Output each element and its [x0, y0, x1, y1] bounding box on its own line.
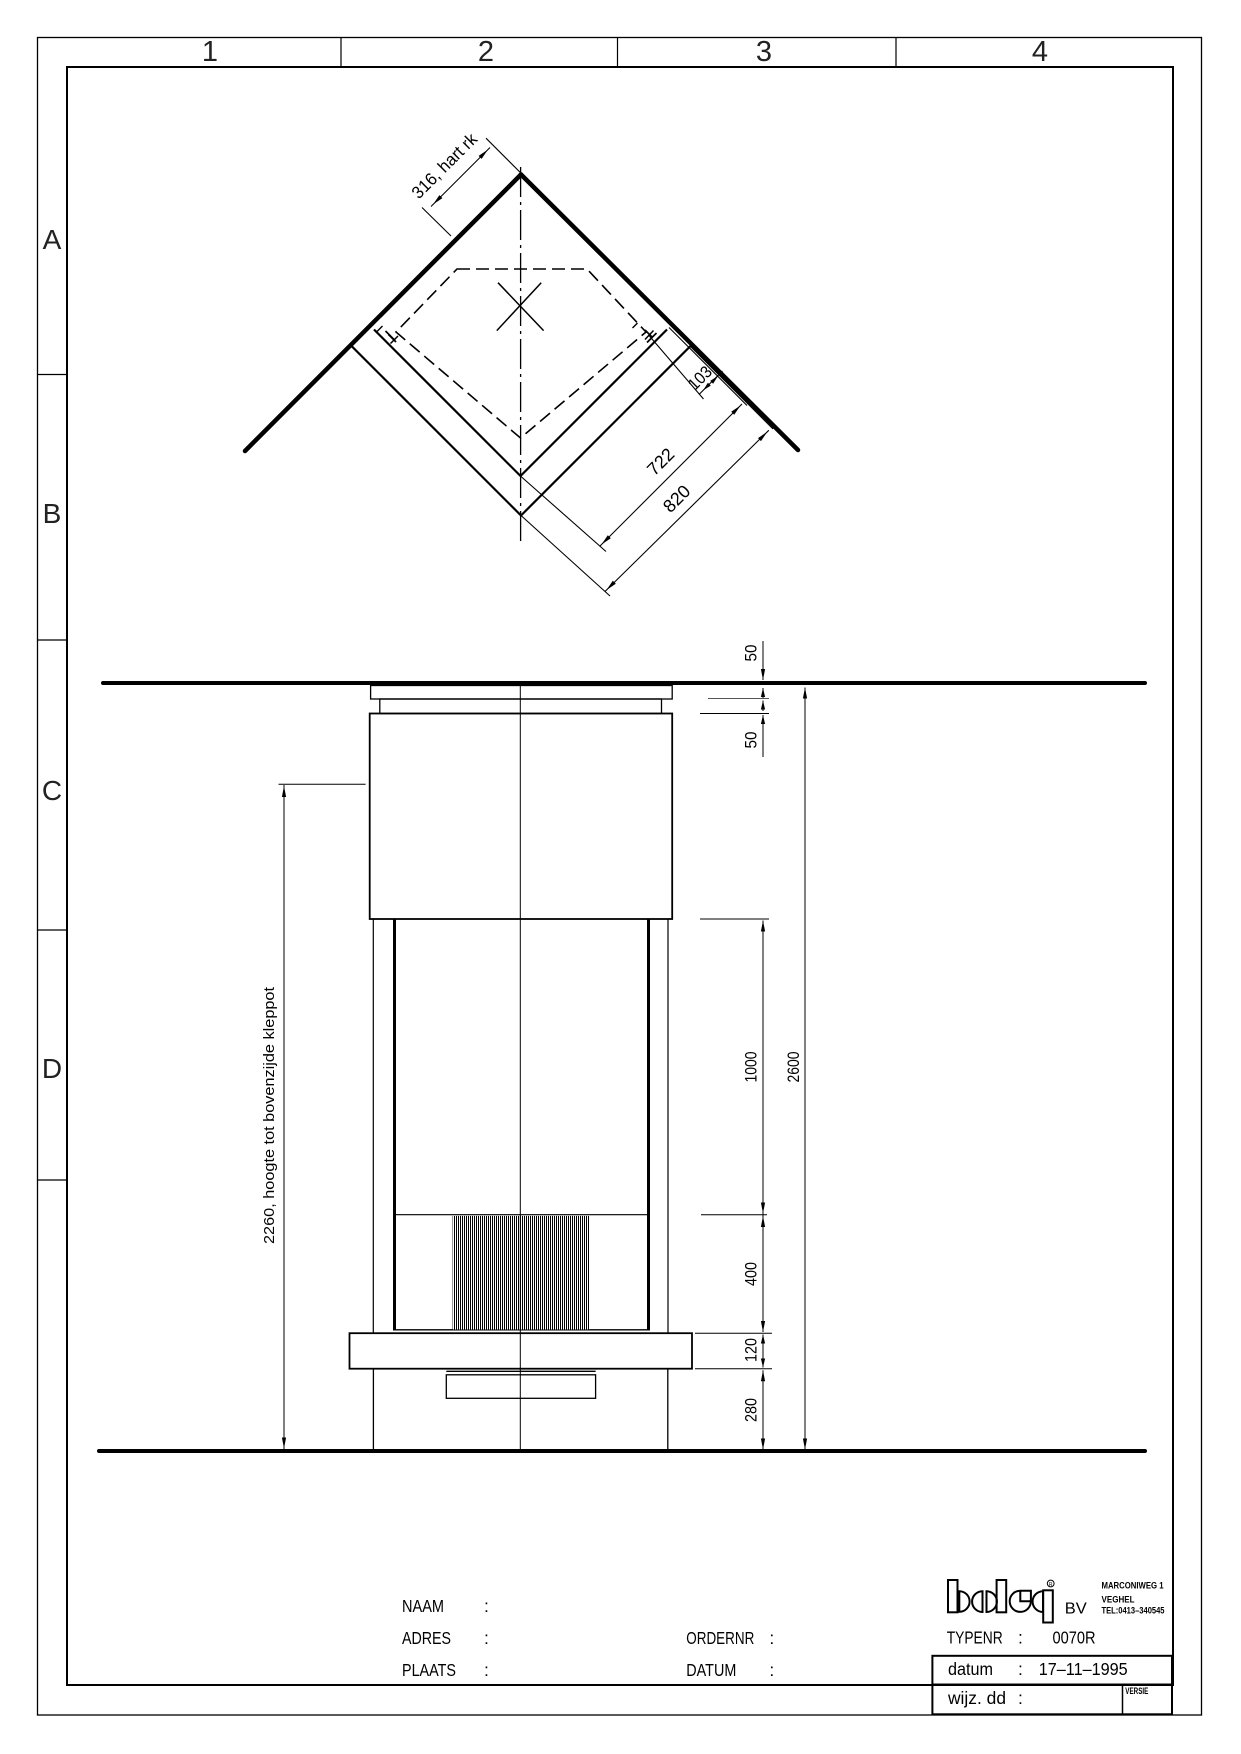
svg-text::: :	[1018, 1627, 1023, 1647]
svg-text:datum: datum	[948, 1659, 993, 1679]
svg-text:2: 2	[478, 36, 494, 68]
svg-text:VEGHEL: VEGHEL	[1102, 1594, 1135, 1604]
svg-text:PLAATS: PLAATS	[402, 1660, 456, 1680]
svg-text:400: 400	[742, 1262, 761, 1286]
svg-text:50: 50	[742, 645, 761, 662]
svg-text:MARCONIWEG 1: MARCONIWEG 1	[1102, 1581, 1164, 1591]
svg-text:NAAM: NAAM	[402, 1596, 444, 1616]
svg-text:4: 4	[1032, 36, 1048, 68]
svg-text:1000: 1000	[742, 1052, 761, 1083]
svg-text:BV: BV	[1065, 1601, 1088, 1618]
svg-text:1: 1	[202, 36, 218, 68]
svg-text:TYPENR: TYPENR	[947, 1627, 1003, 1647]
svg-text:280: 280	[742, 1398, 761, 1422]
svg-text:VERSIE: VERSIE	[1125, 1686, 1148, 1696]
svg-text:D: D	[42, 1053, 62, 1084]
svg-text:3: 3	[756, 36, 772, 68]
svg-text:50: 50	[742, 732, 761, 749]
svg-text::: :	[769, 1660, 774, 1680]
svg-text:2600: 2600	[784, 1052, 803, 1083]
svg-text:C: C	[42, 775, 62, 806]
svg-text::: :	[484, 1660, 489, 1680]
svg-text:DATUM: DATUM	[686, 1660, 736, 1680]
svg-text:TEL:0413–340545: TEL:0413–340545	[1102, 1605, 1165, 1615]
svg-text:0070R: 0070R	[1053, 1627, 1096, 1647]
svg-text:ORDERNR: ORDERNR	[686, 1628, 754, 1648]
svg-text::: :	[1018, 1688, 1023, 1708]
svg-text:R: R	[1049, 1582, 1053, 1588]
svg-text::: :	[769, 1628, 774, 1648]
svg-text:120: 120	[742, 1338, 761, 1362]
svg-text:2260, hoogte tot bovenzijde kl: 2260, hoogte tot bovenzijde kleppot	[261, 986, 278, 1244]
svg-text:17–11–1995: 17–11–1995	[1039, 1659, 1128, 1679]
svg-text::: :	[1018, 1659, 1023, 1679]
svg-text:ADRES: ADRES	[402, 1628, 451, 1648]
svg-text:wijz. dd: wijz. dd	[947, 1688, 1006, 1708]
svg-text::: :	[484, 1596, 489, 1616]
svg-text::: :	[484, 1628, 489, 1648]
svg-text:B: B	[43, 498, 62, 529]
svg-text:A: A	[43, 224, 62, 255]
